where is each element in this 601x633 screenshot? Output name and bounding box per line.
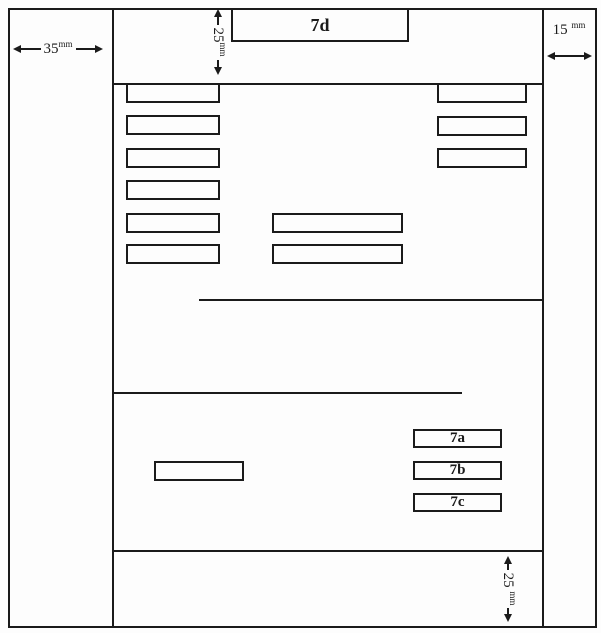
page-layout-diagram: 7d 7a 7b 7c 35mm 15 mm 2 — [0, 0, 601, 633]
dimension-label-right-margin: 15 mm — [546, 23, 592, 38]
footer-box-7b-label: 7b — [450, 462, 466, 479]
header-box-7d-label: 7d — [310, 15, 329, 36]
left-margin-line — [112, 8, 114, 628]
placeholder-box — [272, 213, 403, 233]
arrowhead-right-icon — [504, 614, 512, 622]
arrowhead-right-icon — [214, 67, 222, 75]
dimension-arrow-top-margin: 25mm — [210, 9, 226, 75]
arrowhead-right-icon — [95, 45, 103, 53]
placeholder-box — [126, 180, 220, 200]
content-divider-line-lower — [113, 392, 462, 394]
placeholder-box — [272, 244, 403, 264]
placeholder-box — [154, 461, 244, 481]
bottom-margin-line — [113, 550, 543, 552]
placeholder-box — [126, 148, 220, 168]
dimension-line — [21, 48, 41, 50]
footer-box-7c-label: 7c — [450, 494, 464, 511]
placeholder-box — [126, 83, 220, 103]
arrowhead-left-icon — [547, 52, 555, 60]
placeholder-box — [126, 244, 220, 264]
footer-box-7a: 7a — [413, 429, 502, 448]
dimension-label-left-margin: 35mm — [41, 42, 76, 57]
content-divider-line-upper — [199, 299, 543, 301]
arrowhead-left-icon — [13, 45, 21, 53]
dimension-arrow-right-margin — [547, 48, 592, 64]
footer-box-7a-label: 7a — [450, 430, 465, 447]
arrowhead-left-icon — [504, 556, 512, 564]
dimension-line — [76, 48, 96, 50]
placeholder-box — [437, 116, 527, 136]
right-margin-line — [542, 8, 544, 628]
header-box-7d: 7d — [231, 8, 409, 42]
placeholder-box — [126, 115, 220, 135]
dimension-label-bottom-margin: 25 mm — [501, 570, 516, 609]
dimension-line — [217, 17, 219, 25]
placeholder-box — [437, 83, 527, 103]
placeholder-box — [126, 213, 220, 233]
dimension-arrow-left-margin: 35mm — [13, 41, 103, 57]
dimension-line — [555, 55, 584, 57]
dimension-arrow-bottom-margin: 25 mm — [500, 556, 516, 622]
placeholder-box — [437, 148, 527, 168]
arrowhead-left-icon — [214, 9, 222, 17]
dimension-label-top-margin: 25mm — [211, 25, 226, 60]
dimension-line — [217, 60, 219, 68]
footer-box-7b: 7b — [413, 461, 502, 480]
arrowhead-right-icon — [584, 52, 592, 60]
footer-box-7c: 7c — [413, 493, 502, 512]
